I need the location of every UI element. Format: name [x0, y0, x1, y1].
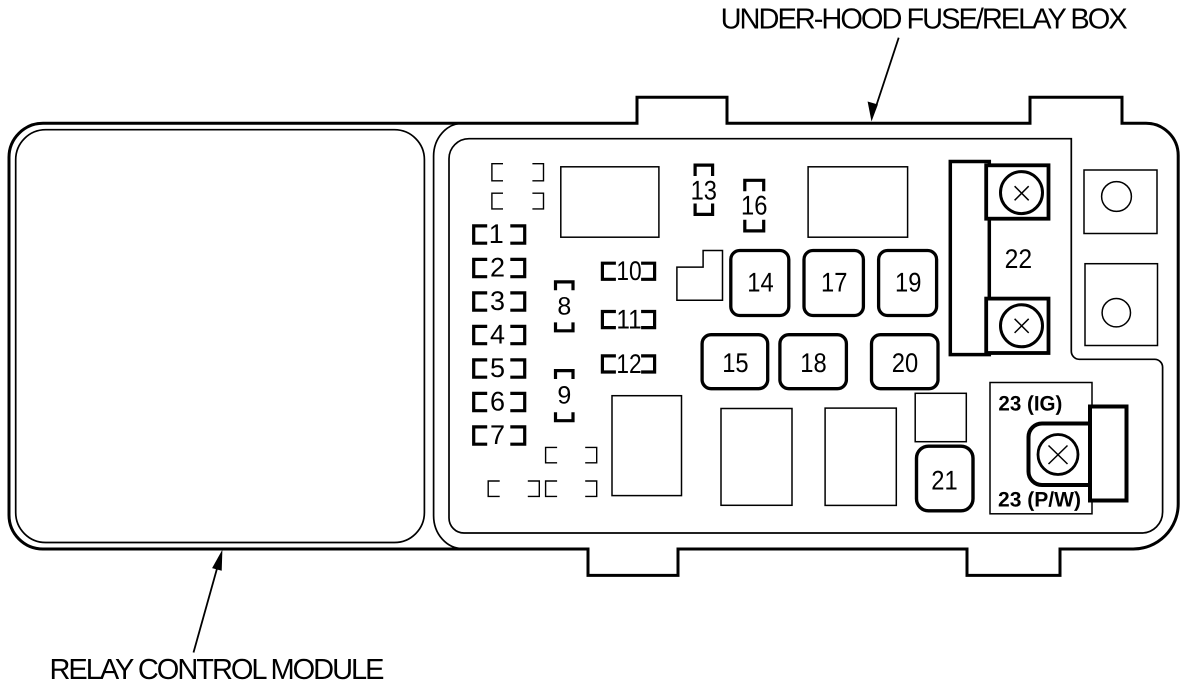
- svg-text:23 (P/W): 23 (P/W): [998, 488, 1081, 511]
- svg-text:6: 6: [490, 387, 505, 417]
- svg-text:17: 17: [821, 268, 847, 298]
- svg-text:11: 11: [616, 305, 641, 335]
- svg-text:2: 2: [490, 253, 505, 283]
- svg-text:14: 14: [747, 268, 773, 298]
- svg-text:10: 10: [616, 256, 641, 286]
- svg-text:20: 20: [892, 348, 918, 378]
- svg-text:18: 18: [800, 348, 826, 378]
- svg-text:21: 21: [931, 466, 957, 496]
- svg-text:3: 3: [490, 286, 505, 316]
- svg-text:19: 19: [895, 268, 921, 298]
- svg-text:RELAY CONTROL MODULE: RELAY CONTROL MODULE: [50, 654, 385, 686]
- svg-text:15: 15: [722, 348, 748, 378]
- svg-text:8: 8: [557, 292, 571, 320]
- svg-text:UNDER-HOOD FUSE/RELAY BOX: UNDER-HOOD FUSE/RELAY BOX: [721, 4, 1128, 36]
- svg-text:9: 9: [557, 382, 571, 410]
- svg-text:1: 1: [489, 219, 504, 249]
- svg-text:13: 13: [691, 175, 717, 205]
- svg-text:4: 4: [490, 320, 505, 350]
- svg-text:23 (IG): 23 (IG): [998, 393, 1062, 416]
- svg-text:12: 12: [616, 349, 641, 379]
- svg-text:5: 5: [490, 353, 505, 383]
- svg-text:16: 16: [741, 191, 767, 221]
- svg-text:22: 22: [1005, 244, 1033, 274]
- svg-text:7: 7: [490, 420, 505, 450]
